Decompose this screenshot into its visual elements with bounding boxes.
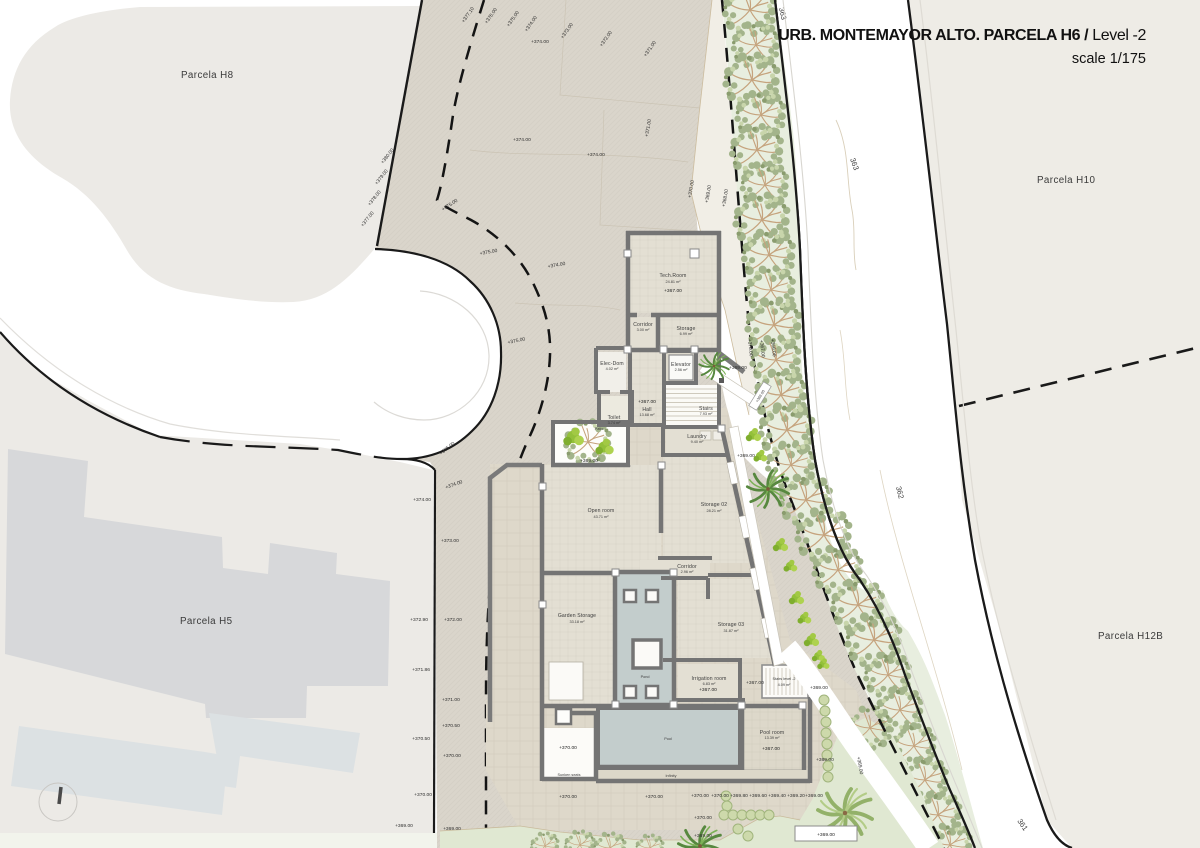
svg-text:+374.00: +374.00: [531, 39, 549, 45]
svg-text:+374.00: +374.00: [513, 137, 531, 143]
svg-text:+367.00: +367.00: [664, 288, 682, 294]
svg-text:+370.00: +370.00: [694, 815, 712, 821]
svg-text:+370.00: +370.00: [559, 794, 577, 800]
svg-text:+370.00: +370.00: [691, 793, 709, 799]
svg-text:+369.00: +369.00: [395, 823, 413, 829]
svg-text:+369.40: +369.40: [768, 793, 786, 799]
svg-text:33.18 m²: 33.18 m²: [570, 620, 586, 624]
svg-text:Parcela H5: Parcela H5: [180, 616, 233, 627]
svg-text:4.09 m²: 4.09 m²: [778, 683, 792, 687]
svg-text:+372.00: +372.00: [444, 617, 462, 623]
svg-text:Storage 03: Storage 03: [718, 622, 744, 628]
svg-text:43.71 m²: 43.71 m²: [594, 515, 610, 519]
svg-text:Patio: Patio: [595, 427, 604, 431]
svg-text:+370.00: +370.00: [443, 753, 461, 759]
svg-text:+369.00: +369.00: [580, 458, 598, 464]
svg-text:Infinity: Infinity: [666, 774, 677, 778]
svg-text:+369.00: +369.00: [817, 832, 835, 838]
svg-text:+370.00: +370.00: [414, 792, 432, 798]
svg-text:+369.00: +369.00: [443, 826, 461, 832]
svg-text:2.96 m²: 2.96 m²: [681, 570, 695, 574]
svg-text:+367.00: +367.00: [638, 399, 656, 405]
svg-text:13.68 m²: 13.68 m²: [640, 413, 656, 417]
svg-text:+371.00: +371.00: [442, 697, 460, 703]
svg-text:+367.00: +367.00: [699, 687, 717, 693]
svg-text:6.83 m²: 6.83 m²: [703, 682, 717, 686]
svg-text:7.93 m²: 7.93 m²: [700, 412, 714, 416]
svg-text:+374.00: +374.00: [587, 152, 605, 158]
svg-text:Stairs level -2: Stairs level -2: [772, 677, 795, 681]
svg-text:Storage 02: Storage 02: [701, 502, 727, 508]
svg-text:Parcela H10: Parcela H10: [1037, 175, 1095, 186]
svg-text:13.39 m²: 13.39 m²: [765, 736, 781, 740]
svg-text:+369.60: +369.60: [749, 793, 767, 799]
svg-text:+372.90: +372.90: [410, 617, 428, 623]
svg-text:+370.00: +370.00: [559, 745, 577, 751]
svg-text:+369.00: +369.00: [805, 793, 823, 799]
svg-text:28.21 m²: 28.21 m²: [707, 509, 723, 513]
svg-text:+369.00: +369.00: [694, 833, 712, 839]
svg-text:Sunken seats: Sunken seats: [557, 773, 580, 777]
svg-text:+370.50: +370.50: [412, 736, 430, 742]
svg-text:+374.00: +374.00: [413, 497, 431, 503]
svg-text:Tech.Room: Tech.Room: [659, 273, 686, 279]
svg-text:24.81 m²: 24.81 m²: [666, 280, 682, 284]
svg-text:+370.00: +370.00: [711, 793, 729, 799]
svg-text:4.02 m²: 4.02 m²: [606, 367, 620, 371]
svg-text:+373.00: +373.00: [441, 538, 459, 544]
svg-text:31.87 m²: 31.87 m²: [724, 629, 740, 633]
svg-text:3.74 m²: 3.74 m²: [608, 421, 622, 425]
svg-text:Garden Storage: Garden Storage: [558, 613, 596, 619]
svg-text:9.40 m²: 9.40 m²: [691, 440, 705, 444]
svg-text:+369.00: +369.00: [810, 685, 828, 691]
svg-text:+370.00: +370.00: [645, 794, 663, 800]
svg-text:URB. MONTEMAYOR ALTO. PARCELA: URB. MONTEMAYOR ALTO. PARCELA H6 / Level…: [778, 27, 1146, 44]
svg-text:+370.50: +370.50: [442, 723, 460, 729]
svg-text:Parcela H12B: Parcela H12B: [1098, 631, 1163, 642]
svg-text:+369.00: +369.00: [729, 365, 747, 371]
svg-text:+369.00: +369.00: [816, 757, 834, 763]
svg-text:scale 1/175: scale 1/175: [1072, 51, 1146, 67]
svg-text:3.00 m²: 3.00 m²: [637, 328, 651, 332]
svg-text:+369.80: +369.80: [730, 793, 748, 799]
svg-text:+369.00: +369.00: [737, 453, 755, 459]
svg-text:Open room: Open room: [588, 508, 615, 514]
svg-text:Parcela H8: Parcela H8: [181, 70, 234, 81]
svg-text:Pond: Pond: [641, 675, 650, 679]
svg-text:2.56 m²: 2.56 m²: [675, 368, 689, 372]
svg-text:+367.00: +367.00: [746, 680, 764, 686]
svg-text:6.99 m²: 6.99 m²: [680, 332, 694, 336]
svg-text:+367.00: +367.00: [762, 746, 780, 752]
svg-text:Pool: Pool: [664, 737, 672, 741]
svg-text:+371.86: +371.86: [412, 667, 430, 673]
svg-text:+369.20: +369.20: [787, 793, 805, 799]
